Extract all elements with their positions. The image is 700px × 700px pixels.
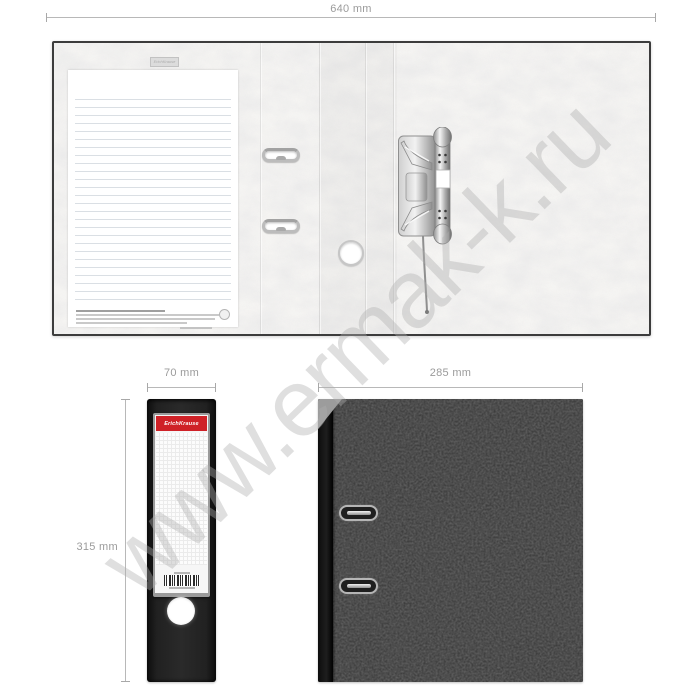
barcode-icon <box>164 575 200 586</box>
ring-slot-top <box>262 148 300 162</box>
dim-tick-right <box>215 383 216 392</box>
barcode-number <box>169 587 195 589</box>
dim-tick-left <box>46 13 47 22</box>
cover-ring-slot-bottom <box>339 578 378 594</box>
spine-label-holder: ErichKrause <box>153 413 210 597</box>
spine-fold-shade <box>319 43 397 334</box>
finger-hole <box>338 240 364 266</box>
spine-side-view: ErichKrause <box>147 399 216 682</box>
dim-cover-height-label: 315 mm <box>38 541 118 553</box>
lever-arch-mechanism-icon <box>397 127 453 319</box>
fine-print <box>76 310 230 329</box>
dim-tick-right <box>655 13 656 22</box>
slot-shine-icon <box>347 511 371 515</box>
crease-line <box>319 43 320 334</box>
dim-cover-width-label: 285 mm <box>318 367 583 379</box>
fine-print-line <box>76 310 165 312</box>
dim-tick-bottom <box>121 681 130 682</box>
dim-cover-height-line <box>125 399 126 682</box>
ring-slot-bottom <box>262 219 300 233</box>
cover-ring-slot-top <box>339 505 378 521</box>
dim-open-width-label: 640 mm <box>46 3 656 15</box>
barcode-caption <box>174 572 190 574</box>
open-binder-top-view: ErichKrause <box>52 41 651 336</box>
ring-tip-icon <box>276 227 286 231</box>
fine-print-line <box>180 327 212 329</box>
front-cover-view <box>318 399 583 682</box>
spine-finger-hole <box>167 597 195 625</box>
fine-print-line <box>76 322 187 324</box>
dim-tick-top <box>121 399 130 400</box>
dim-open-width-line <box>46 17 656 18</box>
ruled-lines <box>75 92 231 304</box>
fine-print-line <box>76 314 219 316</box>
spine-label-grid <box>156 433 207 565</box>
dim-tick-left <box>147 383 148 392</box>
dim-tick-left <box>318 383 319 392</box>
dim-spine-width-label: 70 mm <box>147 367 216 379</box>
brand-stamp: ErichKrause <box>150 57 179 67</box>
product-dimension-diagram: 640 mm ErichKrause <box>0 0 700 700</box>
ring-tip-icon <box>276 156 286 160</box>
fine-print-line <box>76 318 215 320</box>
slot-shine-icon <box>347 584 371 588</box>
dim-spine-width-line <box>147 387 216 388</box>
paper-logo-icon <box>219 309 230 320</box>
dim-cover-width-line <box>318 387 583 388</box>
spine-label-red-band: ErichKrause <box>156 416 207 431</box>
cover-texture <box>318 399 583 682</box>
crease-line <box>365 43 366 334</box>
crease-line <box>260 43 261 334</box>
spine-label-barcode <box>155 572 208 590</box>
cover-spine-strip <box>318 399 333 682</box>
crease-line <box>393 43 394 334</box>
paper-sheet <box>68 70 238 327</box>
dim-tick-right <box>582 383 583 392</box>
